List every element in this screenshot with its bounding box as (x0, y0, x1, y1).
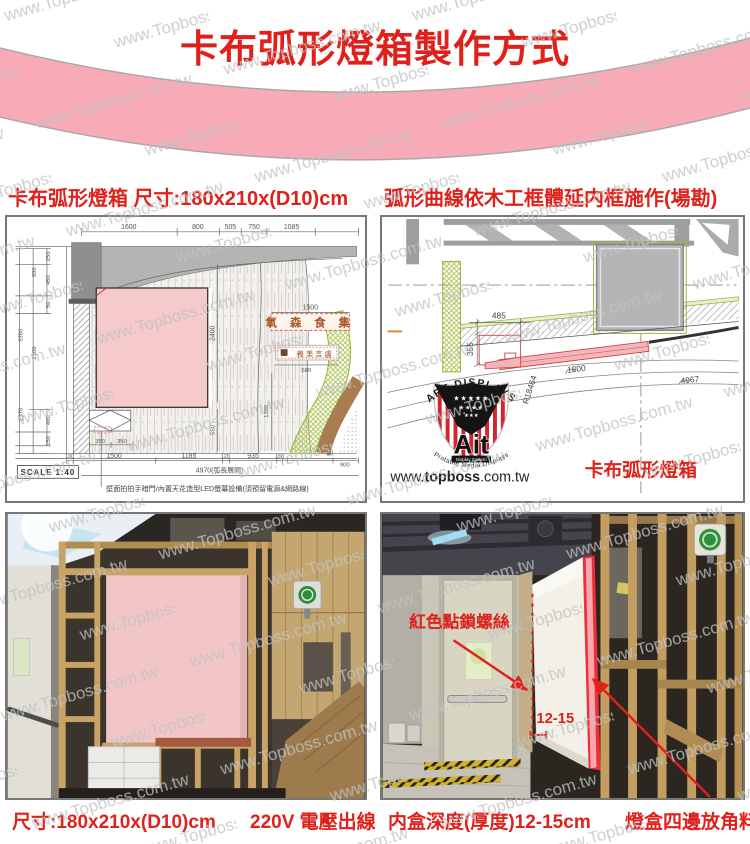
panel-plan-drawing: 485 355 R18464 1800 4967 ★★★★★ ★★★★ ★★★ … (380, 215, 745, 503)
svg-text:1085: 1085 (284, 224, 299, 231)
website-text: www.topboss.com.tw (389, 469, 530, 485)
caption-depth: 内盒深度(厚度)12-15cm (388, 807, 591, 834)
sign-main-box: 氧 森 食 集 (266, 314, 355, 331)
pocket-door (89, 410, 130, 433)
svg-text:80: 80 (327, 452, 334, 458)
scale-label: SCALE 1:40 (21, 468, 76, 477)
sign-main-text: 氧 森 食 集 (266, 315, 355, 329)
svg-text:250: 250 (46, 251, 52, 262)
caption-corner: 燈盒四邊放角料 (625, 807, 750, 834)
svg-text:485: 485 (492, 311, 506, 321)
svg-text:355: 355 (465, 342, 475, 356)
svg-text:900: 900 (340, 462, 351, 468)
logo-name: Ait (454, 430, 490, 460)
svg-text:1800: 1800 (567, 363, 587, 375)
svg-text:350: 350 (117, 439, 128, 445)
sign-sub-box: 義美言盧 (276, 345, 339, 360)
ceiling (383, 514, 592, 575)
logo-stars-row1: ★★★★★ (453, 395, 489, 402)
svg-text:2400: 2400 (210, 326, 217, 341)
ceiling-truss (406, 219, 738, 264)
svg-text:R18464: R18464 (520, 374, 539, 405)
logo-badge: Display System (456, 457, 487, 462)
depth-annotation: 12-15 (536, 711, 574, 727)
svg-text:150: 150 (275, 454, 284, 460)
arc-total-label: 4970(弧長展開) (196, 465, 243, 474)
svg-text:800: 800 (192, 224, 204, 231)
push-bar (448, 695, 507, 702)
svg-text:100: 100 (65, 454, 74, 460)
art-displays-logo: ★★★★★ ★★★★ ★★★ Ait Display System ART DI… (424, 378, 518, 470)
wall-poster (13, 638, 29, 675)
section-label-left: 卡布弧形燈箱 尺寸:180x210x(D10)cm (8, 182, 348, 211)
ledge (155, 738, 251, 747)
caption-size: 尺寸:180x210x(D10)cm (12, 807, 216, 834)
column (594, 242, 687, 334)
door (439, 575, 518, 767)
sign-sub-text: 義美言盧 (296, 350, 333, 359)
panel-photo-front (5, 512, 367, 800)
section-label-right: 弧形曲線依木工框體延内框施作(場勘) (384, 182, 717, 211)
elevation-drawing: 氧 森 食 集 義美言盧 1600 800 505 750 1085 250 9… (15, 224, 358, 493)
scale-box: SCALE 1:40 (17, 466, 78, 479)
plan-drawing: 485 355 R18464 1800 4967 ★★★★★ ★★★★ ★★★ … (387, 219, 738, 493)
svg-text:1185: 1185 (182, 453, 197, 460)
white-cabinet (88, 747, 159, 792)
logo-stars-row3: ★★★ (464, 413, 479, 419)
svg-text:1380: 1380 (264, 404, 270, 418)
panel-elevation-drawing: 氧 森 食 集 義美言盧 1600 800 505 750 1085 250 9… (5, 215, 367, 503)
machine-2 (407, 725, 420, 742)
machine (388, 723, 405, 743)
svg-text:50: 50 (46, 301, 52, 308)
photo-side-scene: 紅色點鎖螺絲 12-15 (383, 514, 743, 798)
pink-lightbox-panel (106, 575, 247, 743)
svg-text:1500: 1500 (106, 453, 121, 460)
svg-text:505: 505 (225, 224, 237, 231)
panel-photo-side: 紅色點鎖螺絲 12-15 (380, 512, 745, 800)
svg-text:400: 400 (46, 414, 52, 425)
sign-logo-icon (281, 349, 288, 356)
svg-text:930: 930 (32, 267, 38, 278)
screw-annotation: 紅色點鎖螺絲 (409, 611, 510, 631)
svg-text:350: 350 (95, 439, 106, 445)
svg-text:550: 550 (211, 424, 217, 435)
svg-text:120: 120 (221, 454, 230, 460)
lightbox-area (96, 288, 207, 407)
svg-text:450: 450 (46, 274, 52, 285)
lightbox-label: 卡布弧形燈箱 (585, 459, 698, 480)
svg-text:935: 935 (247, 453, 259, 460)
svg-text:750: 750 (248, 224, 260, 231)
drawing-note: 壁面拍拍手暗門/內置天花造型LED螢幕設備(須預留電源&網路線) (106, 484, 309, 493)
page-title: 卡布弧形燈箱製作方式 (0, 18, 750, 73)
svg-text:150: 150 (46, 435, 52, 446)
caption-power: 220V 電壓出線 (250, 807, 376, 834)
svg-text:1500: 1500 (303, 305, 318, 312)
svg-text:2370: 2370 (18, 407, 24, 421)
svg-text:580: 580 (301, 368, 312, 374)
photo-front-scene (8, 514, 365, 798)
logo-stars-row2: ★★★★ (459, 404, 484, 411)
svg-text:1600: 1600 (121, 224, 136, 231)
svg-text:2100: 2100 (32, 346, 38, 360)
svg-text:3350: 3350 (18, 328, 24, 342)
green-insulation-strip (443, 261, 461, 371)
floor (59, 788, 286, 798)
